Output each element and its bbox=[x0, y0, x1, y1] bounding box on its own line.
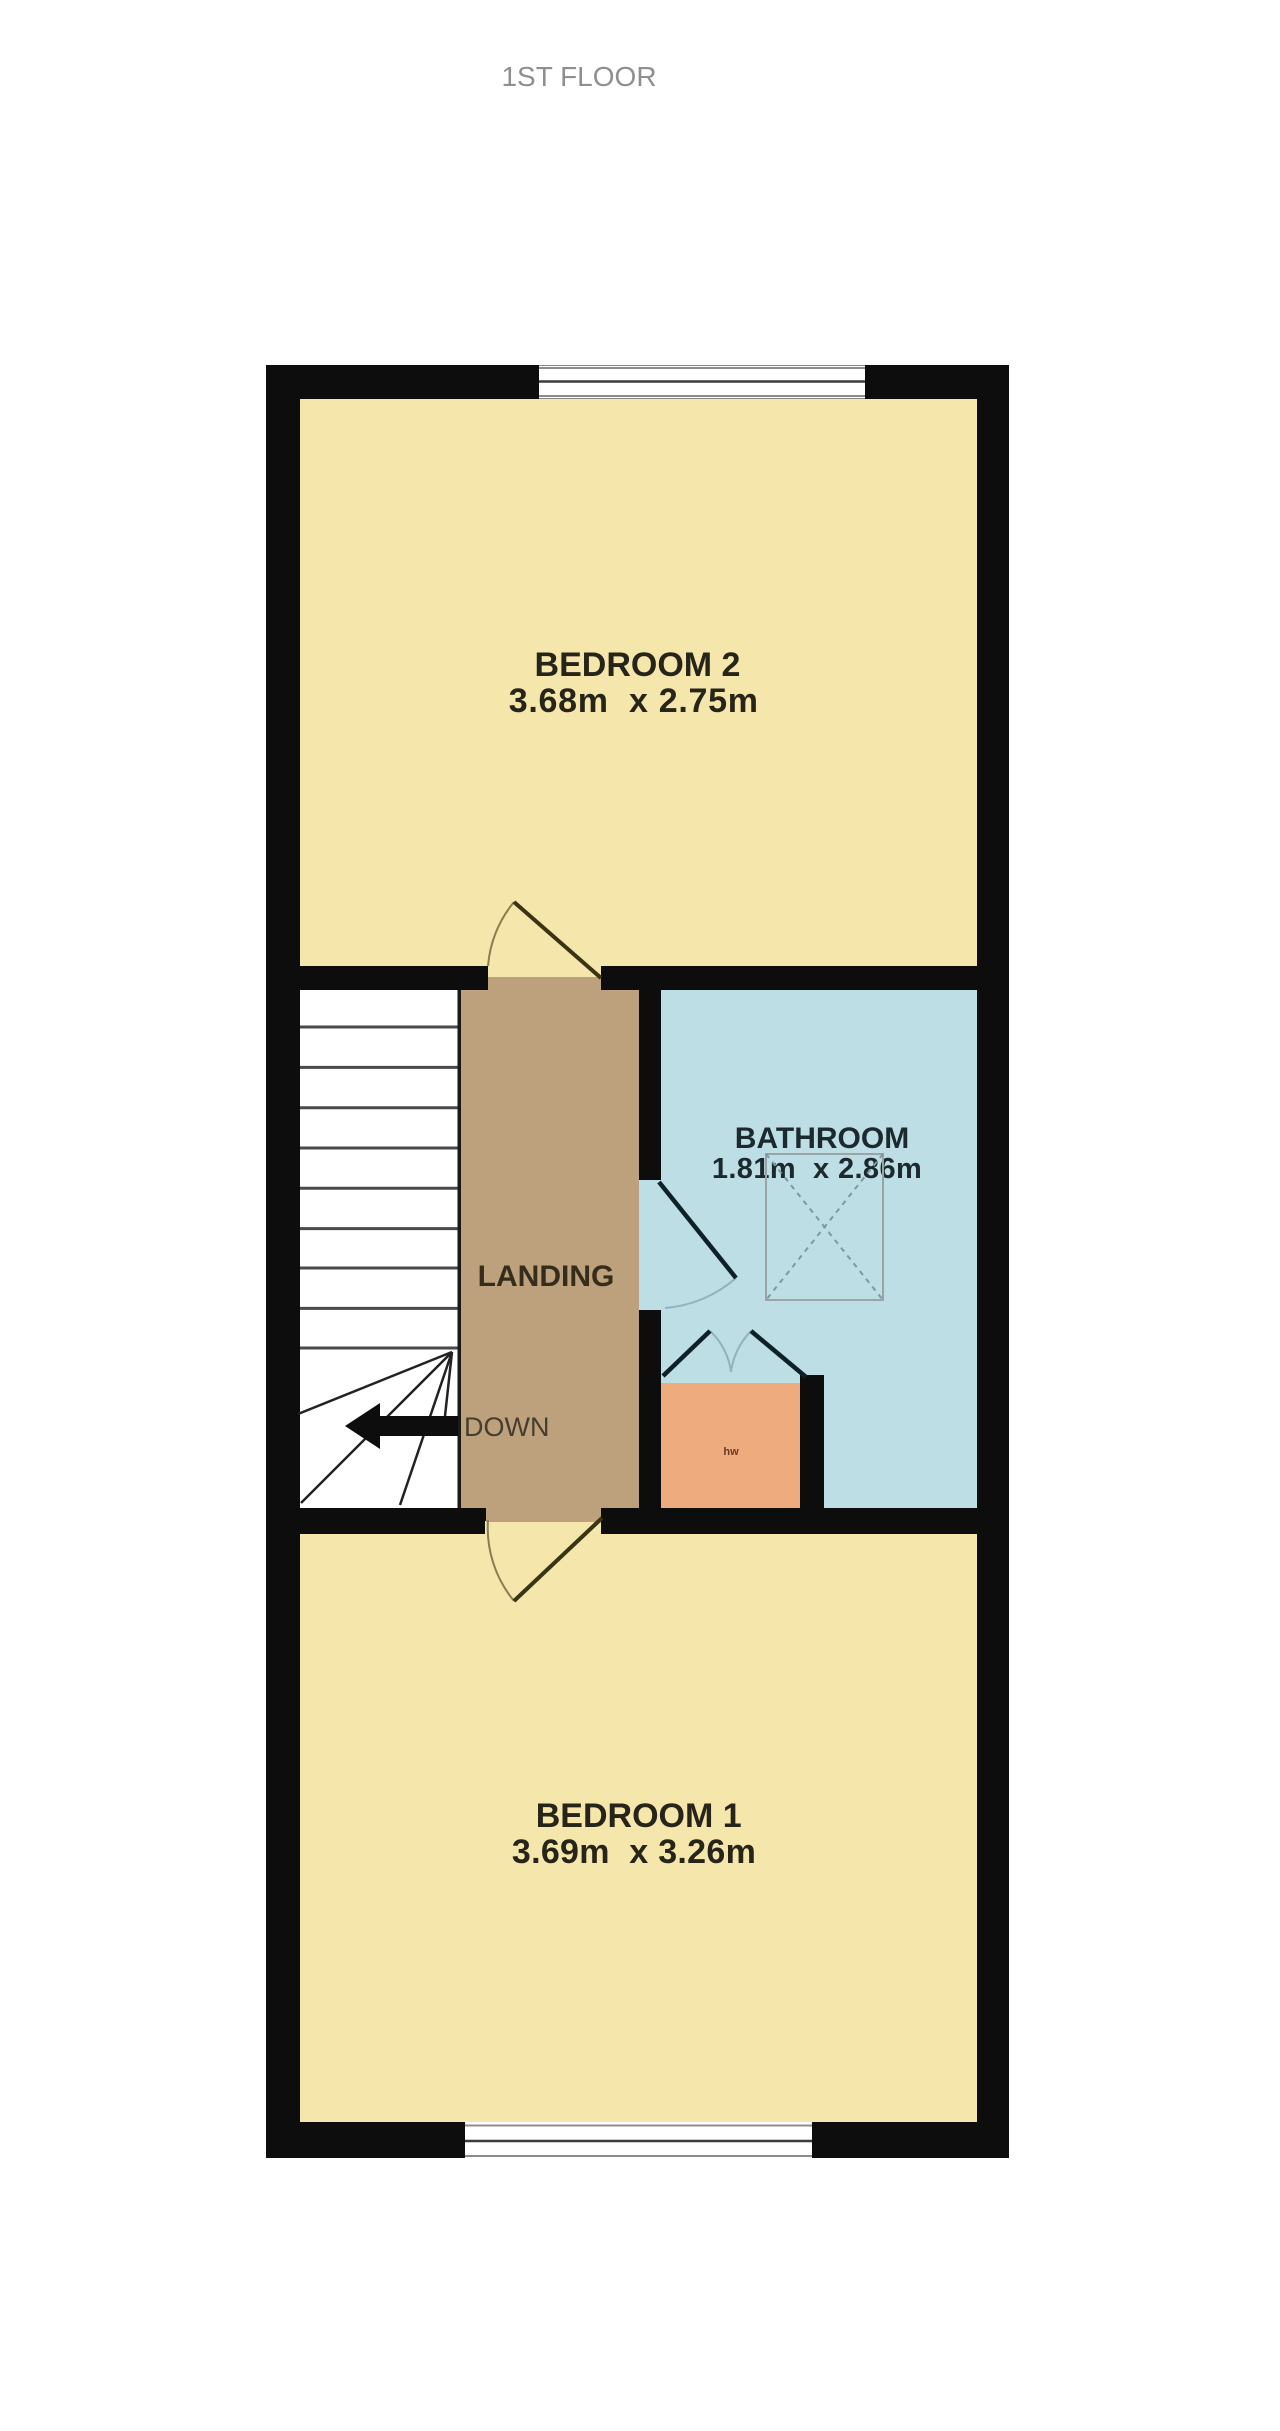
svg-text:1.81m x 2.86m: 1.81m x 2.86m bbox=[712, 1153, 922, 1185]
svg-text:3.69m x 3.26m: 3.69m x 3.26m bbox=[512, 1833, 756, 1871]
svg-text:hw: hw bbox=[723, 1446, 739, 1458]
svg-text:BEDROOM 2: BEDROOM 2 bbox=[535, 646, 741, 684]
svg-text:LANDING: LANDING bbox=[478, 1260, 615, 1293]
svg-text:3.68m x 2.75m: 3.68m x 2.75m bbox=[509, 682, 759, 720]
svg-text:BEDROOM 1: BEDROOM 1 bbox=[536, 1797, 742, 1835]
svg-text:1ST FLOOR: 1ST FLOOR bbox=[501, 61, 656, 92]
svg-text:DOWN: DOWN bbox=[464, 1412, 549, 1442]
svg-text:BATHROOM: BATHROOM bbox=[735, 1122, 909, 1155]
